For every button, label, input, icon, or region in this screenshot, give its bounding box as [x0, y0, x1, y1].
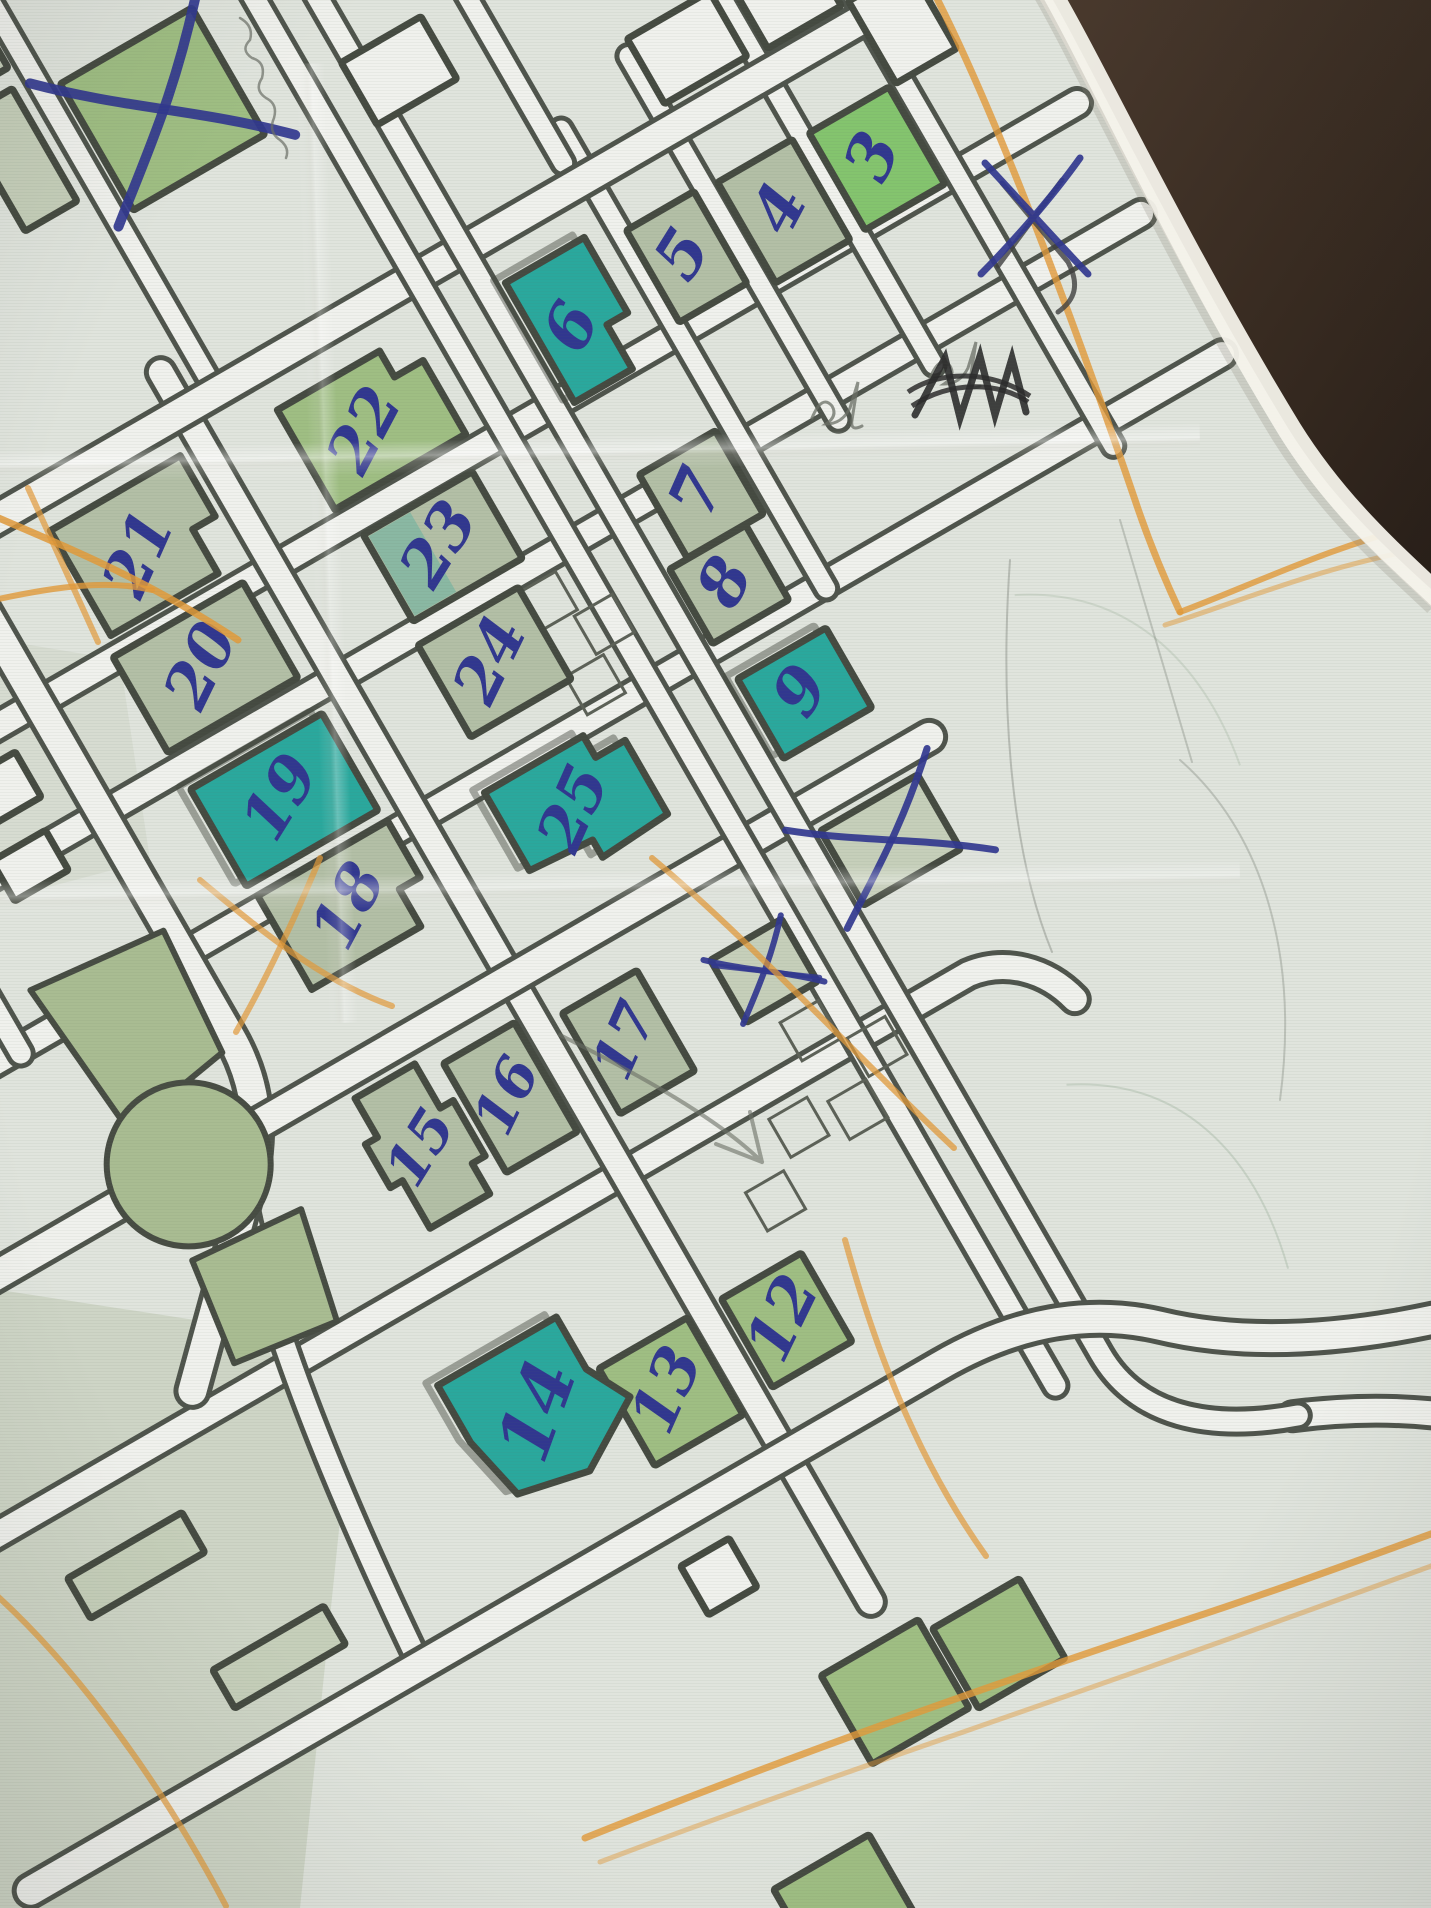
photo-vignette — [0, 0, 1431, 1908]
map-photo: 34567891213141516171819202122232425 — [0, 0, 1431, 1908]
annotated-street-map-photo: 34567891213141516171819202122232425 — [0, 0, 1431, 1908]
